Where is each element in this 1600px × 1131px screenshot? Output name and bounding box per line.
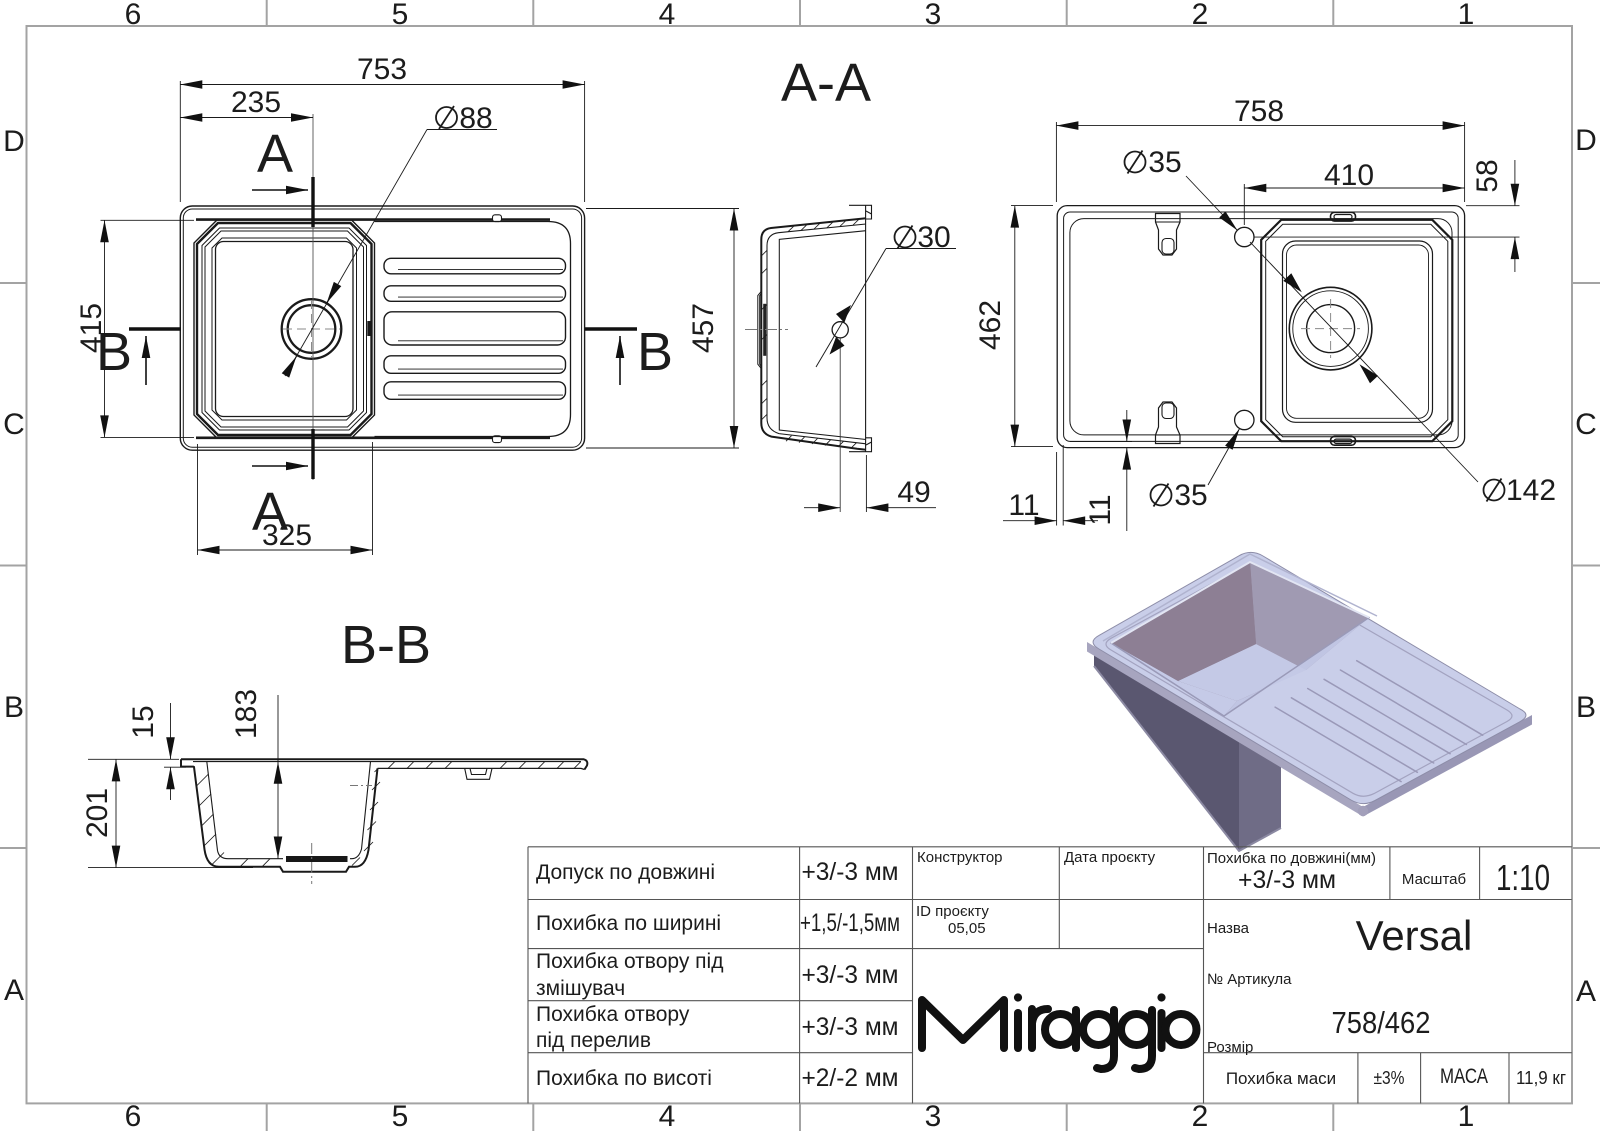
svg-text:58: 58 xyxy=(1471,159,1504,192)
svg-text:Versal: Versal xyxy=(1356,912,1473,959)
svg-text:4: 4 xyxy=(659,0,676,31)
svg-text:88: 88 xyxy=(459,102,492,135)
svg-text:C: C xyxy=(3,408,25,441)
svg-text:11,9 кг: 11,9 кг xyxy=(1516,1068,1566,1088)
svg-text:1: 1 xyxy=(1458,1100,1475,1131)
svg-text:D: D xyxy=(1575,124,1597,157)
svg-text:Розмір: Розмір xyxy=(1207,1039,1253,1056)
svg-text:D: D xyxy=(3,125,25,158)
svg-text:758: 758 xyxy=(1234,95,1284,128)
svg-text:462: 462 xyxy=(974,300,1007,350)
svg-text:+3/-3 мм: +3/-3 мм xyxy=(802,858,899,886)
svg-text:758/462: 758/462 xyxy=(1332,1005,1431,1040)
svg-text:11: 11 xyxy=(1008,489,1039,522)
svg-text:201: 201 xyxy=(81,788,114,838)
svg-text:Похибка отвору під: Похибка отвору під xyxy=(536,950,723,973)
svg-text:3: 3 xyxy=(925,0,942,31)
svg-text:30: 30 xyxy=(917,221,950,254)
svg-text:457: 457 xyxy=(687,303,720,353)
svg-text:1: 1 xyxy=(1458,0,1475,31)
svg-text:ID проєкту: ID проєкту xyxy=(916,903,989,920)
svg-text:5: 5 xyxy=(392,1100,409,1131)
svg-text:183: 183 xyxy=(230,689,263,739)
svg-text:A-A: A-A xyxy=(781,53,871,113)
svg-text:325: 325 xyxy=(262,519,312,552)
svg-text:142: 142 xyxy=(1506,474,1556,507)
svg-text:2: 2 xyxy=(1192,1100,1209,1131)
svg-text:3: 3 xyxy=(925,1100,942,1131)
svg-text:235: 235 xyxy=(231,86,281,119)
svg-text:4: 4 xyxy=(659,1100,676,1131)
svg-text:B: B xyxy=(1576,691,1596,724)
svg-text:Конструктор: Конструктор xyxy=(917,849,1003,866)
svg-text:05,05: 05,05 xyxy=(948,920,986,937)
svg-text:+3/-3 мм: +3/-3 мм xyxy=(1238,866,1336,894)
svg-text:Похибка по ширині: Похибка по ширині xyxy=(536,912,721,935)
svg-text:Похибка по висоті: Похибка по висоті xyxy=(536,1067,712,1090)
svg-text:змішувач: змішувач xyxy=(536,977,625,1000)
svg-text:410: 410 xyxy=(1324,159,1374,192)
svg-text:1:10: 1:10 xyxy=(1496,857,1550,898)
svg-text:35: 35 xyxy=(1174,479,1207,512)
svg-text:Дата проєкту: Дата проєкту xyxy=(1064,849,1156,866)
svg-text:A: A xyxy=(257,124,293,184)
svg-text:C: C xyxy=(1575,408,1597,441)
svg-text:Похибка маси: Похибка маси xyxy=(1226,1069,1336,1088)
svg-text:+3/-3 мм: +3/-3 мм xyxy=(802,961,899,989)
svg-text:+3/-3 мм: +3/-3 мм xyxy=(802,1013,899,1041)
svg-text:Масштаб: Масштаб xyxy=(1402,871,1466,888)
svg-text:A: A xyxy=(1576,975,1596,1008)
svg-text:B: B xyxy=(4,691,24,724)
svg-text:35: 35 xyxy=(1148,146,1181,179)
svg-text:під перелив: під перелив xyxy=(536,1029,651,1052)
svg-text:B: B xyxy=(637,322,673,382)
svg-text:49: 49 xyxy=(897,476,930,509)
svg-text:15: 15 xyxy=(127,705,160,738)
svg-text:МАСА: МАСА xyxy=(1440,1065,1488,1088)
svg-text:6: 6 xyxy=(125,0,142,31)
svg-text:Похибка отвору: Похибка отвору xyxy=(536,1003,690,1026)
svg-text:5: 5 xyxy=(392,0,409,31)
svg-text:753: 753 xyxy=(357,53,407,86)
svg-text:B-B: B-B xyxy=(341,615,431,675)
svg-text:2: 2 xyxy=(1192,0,1209,31)
svg-text:Похибка по довжині(мм): Похибка по довжині(мм) xyxy=(1207,850,1376,867)
svg-text:415: 415 xyxy=(75,303,108,353)
svg-text:A: A xyxy=(4,974,24,1007)
svg-text:6: 6 xyxy=(125,1100,142,1131)
svg-text:11: 11 xyxy=(1084,494,1117,525)
svg-text:+1,5/-1,5мм: +1,5/-1,5мм xyxy=(800,909,900,937)
svg-text:Допуск по довжині: Допуск по довжині xyxy=(536,861,715,884)
svg-text:±3%: ±3% xyxy=(1374,1068,1405,1088)
svg-text:Назва: Назва xyxy=(1207,920,1250,937)
svg-text:№ Артикула: № Артикула xyxy=(1207,971,1292,988)
svg-text:+2/-2 мм: +2/-2 мм xyxy=(802,1064,899,1092)
